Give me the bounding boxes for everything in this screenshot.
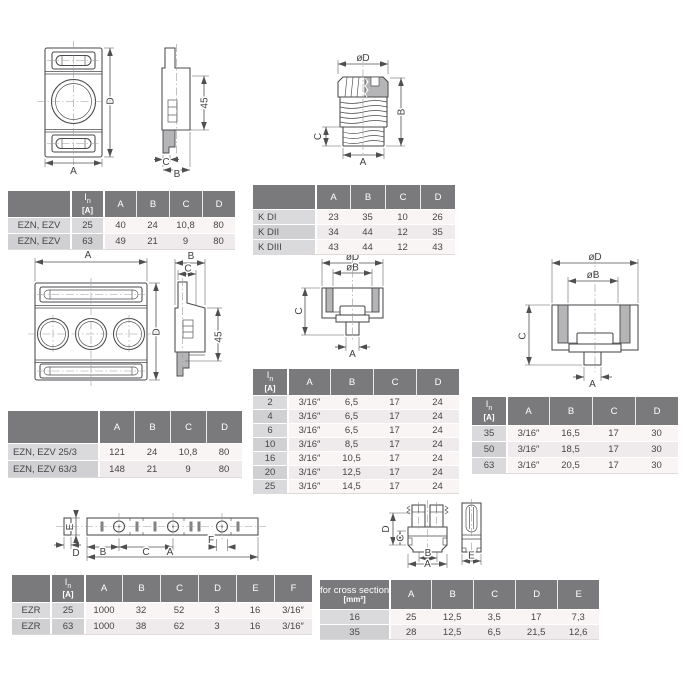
cell: 80	[202, 233, 235, 249]
cell: 24	[416, 409, 459, 423]
row-label: 35	[472, 425, 506, 441]
table-ezn-ezv-3pole-dims: A B C D EZN, EZV 25/3 121 24 10,8 80 EZN…	[8, 411, 242, 477]
corner-header	[253, 185, 315, 209]
cell: 43	[315, 239, 350, 254]
col-header: C	[373, 369, 416, 395]
cell: 49	[103, 233, 136, 249]
col-header: D	[416, 369, 459, 395]
cell: 24	[416, 479, 459, 493]
row-label: EZR	[12, 618, 50, 634]
cell: 10,5	[330, 451, 373, 465]
col-header: C	[473, 580, 515, 609]
drawing-kd-cap: øD B C A	[313, 53, 408, 168]
col-header-in: In[A]	[70, 191, 103, 217]
col-header: B	[350, 185, 385, 209]
col-header: E	[236, 575, 274, 602]
col-header: D	[202, 191, 235, 217]
cell: 40	[103, 217, 136, 233]
svg-text:C: C	[184, 264, 191, 275]
col-header: E	[557, 580, 599, 609]
cell: 10	[385, 209, 420, 224]
cell: 3/16″	[287, 395, 330, 409]
row-label: EZN, EZV 25/3	[8, 443, 98, 460]
cell: 28	[389, 624, 431, 639]
cell: 24	[416, 437, 459, 451]
svg-text:B: B	[174, 169, 181, 180]
corner-header	[12, 575, 50, 602]
row-label: K DI	[253, 209, 315, 224]
cell: 38	[122, 618, 160, 634]
cell: 16	[236, 602, 274, 618]
cell: 63	[70, 233, 103, 249]
svg-text:A: A	[70, 166, 77, 177]
svg-text:A: A	[424, 559, 431, 570]
cell: 17	[373, 395, 416, 409]
col-header: A	[84, 575, 122, 602]
cell: 24	[136, 217, 169, 233]
col-header: A	[287, 369, 330, 395]
col-header: B	[549, 397, 592, 425]
cell: 80	[206, 443, 242, 460]
col-header: C	[385, 185, 420, 209]
cell: 44	[350, 239, 385, 254]
svg-text:D: D	[381, 525, 392, 532]
svg-text:øB: øB	[587, 270, 600, 281]
drawing-ezn-ezv-single: A D 45 C B	[37, 41, 211, 180]
cell: 3/16″	[287, 437, 330, 451]
col-header-in: In[A]	[253, 369, 287, 395]
cell: 24	[134, 443, 170, 460]
cell: 24	[416, 451, 459, 465]
cell: 1000	[84, 618, 122, 634]
svg-text:B: B	[188, 251, 195, 262]
cell: 12,5	[431, 624, 473, 639]
svg-text:B: B	[397, 108, 408, 115]
cell: 24	[416, 395, 459, 409]
col-header: F	[274, 575, 312, 602]
cell: 148	[98, 460, 134, 477]
row-label: EZN, EZV	[8, 217, 70, 233]
col-header: A	[389, 580, 431, 609]
cell: 3/16″	[506, 457, 549, 473]
col-header: A	[98, 411, 134, 443]
col-header: C	[169, 191, 202, 217]
svg-text:A: A	[589, 379, 596, 390]
col-header: D	[515, 580, 557, 609]
cell: 3/16″	[287, 409, 330, 423]
cell: 24	[416, 423, 459, 437]
cell: 12	[385, 224, 420, 239]
cell: 7,3	[557, 609, 599, 624]
table-adapter-d01-dims: In[A] A B C D 2 3/16″ 6,5 17 24 4 3/16″ …	[253, 369, 459, 493]
corner-header	[8, 411, 98, 443]
row-label: 6	[253, 423, 287, 437]
cell: 17	[373, 423, 416, 437]
cell: 3,5	[473, 609, 515, 624]
cell: 17	[373, 437, 416, 451]
cell: 17	[592, 457, 635, 473]
cell: 80	[202, 217, 235, 233]
svg-text:E: E	[65, 523, 76, 530]
table-ezn-ezv-dims: In[A] A B C D EZN, EZV 25 40 24 10,8 80 …	[8, 191, 235, 249]
cell: 14,5	[330, 479, 373, 493]
svg-text:C: C	[396, 534, 407, 541]
svg-text:C: C	[294, 307, 305, 314]
cell: 17	[592, 425, 635, 441]
cell: 3/16″	[287, 451, 330, 465]
svg-text:E: E	[468, 551, 475, 562]
svg-text:F: F	[208, 535, 214, 546]
cell: 23	[315, 209, 350, 224]
cell: 25	[50, 602, 84, 618]
cell: 12,6	[557, 624, 599, 639]
cell: 3/16″	[287, 423, 330, 437]
cell: 35	[350, 209, 385, 224]
svg-text:C: C	[142, 547, 149, 558]
datasheet-page: A D 45 C B øD	[0, 0, 687, 687]
cell: 9	[169, 233, 202, 249]
svg-text:A: A	[167, 547, 174, 558]
cell: 3	[198, 602, 236, 618]
cell: 17	[373, 479, 416, 493]
cell: 30	[635, 457, 678, 473]
cell: 6,5	[330, 395, 373, 409]
col-header: D	[206, 411, 242, 443]
table-adapter-d02-dims: In[A] A B C D 35 3/16″ 16,5 17 30 50 3/1…	[472, 397, 678, 473]
cell: 12,5	[330, 465, 373, 479]
cell: 121	[98, 443, 134, 460]
cell: 80	[206, 460, 242, 477]
cell: 9	[170, 460, 206, 477]
drawing-ezr-busbar: E D B C F	[54, 510, 266, 561]
cell: 3/16″	[506, 425, 549, 441]
row-label: K DII	[253, 224, 315, 239]
cell: 20,5	[549, 457, 592, 473]
cell: 3/16″	[287, 479, 330, 493]
row-label: 35	[320, 624, 389, 639]
svg-text:D: D	[72, 548, 79, 559]
cell: 16,5	[549, 425, 592, 441]
cell: 6,5	[473, 624, 515, 639]
col-header: D	[198, 575, 236, 602]
cell: 26	[420, 209, 455, 224]
cell: 6,5	[330, 409, 373, 423]
drawing-ezn-ezv-3pole: A D B	[28, 250, 225, 386]
row-label: K DIII	[253, 239, 315, 254]
col-header: A	[315, 185, 350, 209]
svg-text:B: B	[425, 548, 432, 559]
col-header: B	[136, 191, 169, 217]
col-header: B	[122, 575, 160, 602]
table-cross-section-dims: for cross section[mm²] A B C D E 16 25 1…	[320, 580, 599, 639]
cell: 17	[515, 609, 557, 624]
cell: 21	[134, 460, 170, 477]
cell: 8,5	[330, 437, 373, 451]
svg-text:A: A	[85, 250, 92, 261]
svg-text:A: A	[360, 157, 367, 168]
col-header: D	[635, 397, 678, 425]
svg-text:D: D	[152, 328, 163, 335]
cell: 34	[315, 224, 350, 239]
cell: 52	[160, 602, 198, 618]
row-label: 10	[253, 437, 287, 451]
col-header: C	[592, 397, 635, 425]
svg-text:45: 45	[214, 331, 225, 343]
cell: 3/16″	[506, 441, 549, 457]
corner-header-cross-section: for cross section[mm²]	[320, 580, 389, 609]
cell: 16	[236, 618, 274, 634]
cell: 24	[416, 465, 459, 479]
svg-text:C: C	[162, 157, 169, 168]
col-header: C	[160, 575, 198, 602]
svg-text:B: B	[100, 547, 107, 558]
row-label: 63	[472, 457, 506, 473]
col-header: B	[330, 369, 373, 395]
col-header: A	[506, 397, 549, 425]
row-label: 25	[253, 479, 287, 493]
drawing-adapter-kd-small: øD øB C A	[294, 252, 383, 360]
table-kd-dims: A B C D K DI 23 35 10 26 K DII 34 44 12 …	[253, 185, 455, 254]
svg-text:45: 45	[200, 97, 211, 109]
cell: 10,8	[169, 217, 202, 233]
col-header-in: In[A]	[50, 575, 84, 602]
cell: 3/16″	[287, 465, 330, 479]
cell: 63	[50, 618, 84, 634]
cell: 10,8	[170, 443, 206, 460]
cell: 30	[635, 425, 678, 441]
svg-text:øB: øB	[346, 263, 359, 274]
cell: 35	[420, 224, 455, 239]
cell: 12	[385, 239, 420, 254]
cell: 18,5	[549, 441, 592, 457]
col-header: A	[103, 191, 136, 217]
drawing-terminal-clamp: D C B A E	[381, 499, 481, 570]
cell: 21,5	[515, 624, 557, 639]
cell: 6,5	[330, 423, 373, 437]
col-header: C	[170, 411, 206, 443]
corner-header	[8, 191, 70, 217]
svg-text:øD: øD	[588, 252, 601, 263]
col-header-in: In[A]	[472, 397, 506, 425]
cell: 30	[635, 441, 678, 457]
cell: 17	[373, 451, 416, 465]
svg-text:C: C	[313, 133, 324, 140]
row-label: EZN, EZV	[8, 233, 70, 249]
cell: 62	[160, 618, 198, 634]
svg-text:C: C	[518, 332, 529, 339]
col-header: D	[420, 185, 455, 209]
cell: 43	[420, 239, 455, 254]
cell: 32	[122, 602, 160, 618]
cell: 44	[350, 224, 385, 239]
svg-text:øD: øD	[356, 53, 369, 64]
cell: 3/16″	[274, 618, 312, 634]
cell: 25	[389, 609, 431, 624]
row-label: 20	[253, 465, 287, 479]
row-label: 16	[253, 451, 287, 465]
col-header: B	[431, 580, 473, 609]
cell: 25	[70, 217, 103, 233]
svg-text:A: A	[349, 349, 356, 360]
drawing-adapter-kd-large: øD øB C A	[518, 252, 639, 390]
cell: 17	[592, 441, 635, 457]
row-label: 16	[320, 609, 389, 624]
row-label: 2	[253, 395, 287, 409]
col-header: B	[134, 411, 170, 443]
cell: 1000	[84, 602, 122, 618]
cell: 17	[373, 409, 416, 423]
cell: 12,5	[431, 609, 473, 624]
cell: 21	[136, 233, 169, 249]
table-ezr-dims: In[A] A B C D E F EZR 25 1000 32 52 3 16…	[12, 575, 312, 634]
row-label: EZN, EZV 63/3	[8, 460, 98, 477]
row-label: EZR	[12, 602, 50, 618]
cell: 3/16″	[274, 602, 312, 618]
row-label: 4	[253, 409, 287, 423]
svg-text:D: D	[106, 97, 117, 104]
row-label: 50	[472, 441, 506, 457]
cell: 3	[198, 618, 236, 634]
cell: 17	[373, 465, 416, 479]
